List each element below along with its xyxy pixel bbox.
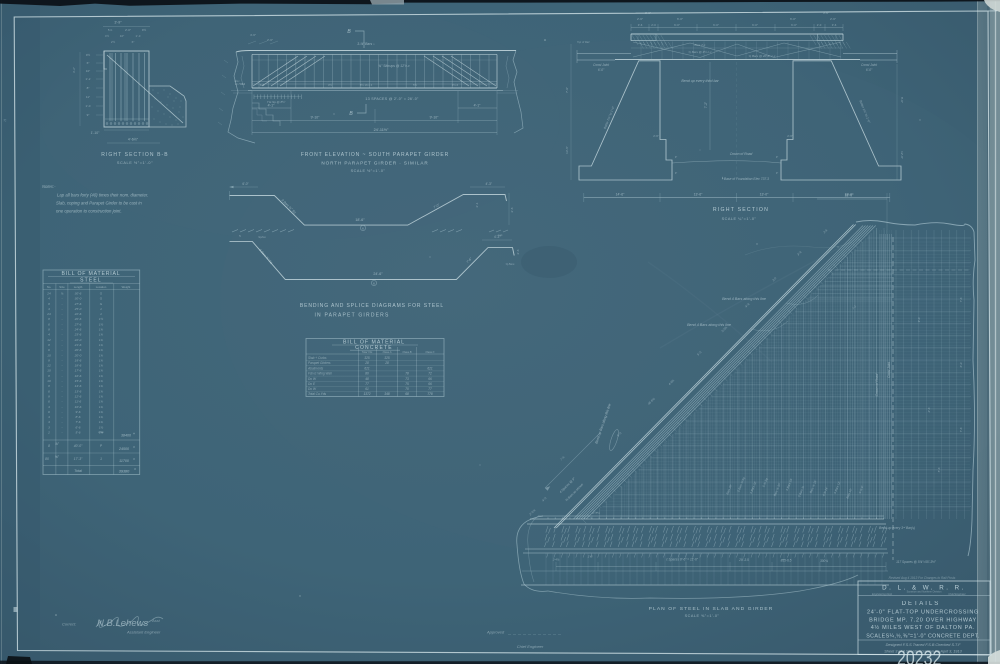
svg-text:78: 78 — [405, 372, 409, 376]
svg-text:10": 10" — [120, 34, 124, 38]
svg-text:6": 6" — [132, 40, 135, 44]
svg-text:2'-7½: 2'-7½ — [591, 511, 600, 515]
svg-text:2-4⅞: 2-4⅞ — [552, 558, 560, 562]
svg-text:DETAILS: DETAILS — [902, 601, 941, 607]
svg-text:9'-10": 9'-10" — [430, 116, 439, 120]
svg-text:6'-0": 6'-0" — [790, 17, 796, 21]
svg-text:2'-1: 2'-1 — [475, 202, 479, 207]
svg-text:1½: 1½ — [99, 425, 104, 429]
svg-text:6: 6 — [48, 322, 50, 326]
svg-text:Elev: Elev — [234, 79, 240, 83]
svg-text:Splice: Splice — [258, 235, 266, 239]
svg-text:2'-6: 2'-6 — [516, 249, 520, 254]
svg-text:1¾: 1¾ — [99, 353, 104, 357]
svg-text:8: 8 — [48, 395, 50, 399]
svg-text:21'-6: 21'-6 — [74, 343, 82, 347]
svg-text:13'-6: 13'-6 — [75, 389, 82, 393]
svg-text:38400: 38400 — [121, 434, 131, 438]
svg-text:18'-6: 18'-6 — [75, 364, 82, 368]
svg-text:1'-3: 1'-3 — [136, 34, 141, 38]
svg-text:8'-6: 8'-6 — [75, 415, 80, 419]
svg-text:-: - — [61, 307, 62, 311]
svg-text:-: - — [61, 322, 62, 326]
svg-text:-: - — [61, 369, 62, 373]
svg-text:9": 9" — [675, 171, 677, 175]
svg-text:80: 80 — [45, 457, 49, 461]
svg-text:9": 9" — [675, 155, 677, 159]
svg-text:19'-6: 19'-6 — [75, 358, 82, 362]
svg-text:BRIDGE MP. 7.20 OVER HIGHWAY: BRIDGE MP. 7.20 OVER HIGHWAY — [869, 618, 977, 624]
svg-text:8: 8 — [48, 302, 50, 306]
svg-text:4: 4 — [48, 415, 50, 419]
svg-text:-: - — [61, 333, 62, 337]
svg-text:Slab, coping and Parapet Girde: Slab, coping and Parapet Girder to be ca… — [56, 201, 142, 206]
svg-text:855-6.5: 855-6.5 — [781, 559, 792, 563]
svg-text:SCALES¼,½,⅜"=1'-0" CONCRETE D: SCALES¼,½,⅜"=1'-0" CONCRETE DEPT. — [866, 633, 980, 640]
svg-text:325: 325 — [384, 356, 390, 360]
svg-text:-: - — [61, 343, 62, 347]
svg-text:1¾: 1¾ — [99, 374, 104, 378]
svg-text:17'-6: 17'-6 — [75, 369, 82, 373]
svg-text:24: 24 — [46, 312, 51, 316]
svg-text:9'-6: 9'-6 — [75, 410, 80, 414]
svg-text:8": 8" — [87, 86, 90, 90]
svg-text:73: 73 — [405, 377, 409, 381]
svg-text:6'-0": 6'-0" — [791, 23, 797, 27]
svg-text:1¾: 1¾ — [99, 348, 104, 352]
svg-text:Total: Total — [74, 469, 82, 473]
svg-text:1'-0: 1'-0 — [86, 104, 91, 108]
svg-text:c Spaces 8'-6" = 11'-6": c Spaces 8'-6" = 11'-6" — [666, 558, 699, 562]
svg-text:1: 1 — [100, 312, 102, 316]
svg-text:20'-6: 20'-6 — [74, 348, 82, 352]
svg-text:4: 4 — [48, 307, 50, 311]
svg-text:77: 77 — [365, 382, 369, 386]
svg-text:10: 10 — [47, 379, 51, 383]
svg-text:2: 2 — [47, 431, 50, 435]
svg-text:1¾: 1¾ — [99, 395, 104, 399]
svg-text:4: 4 — [48, 420, 50, 424]
svg-text:⅝ Bars: ⅝ Bars — [506, 262, 515, 266]
svg-text:BILL OF MATERIAL: BILL OF MATERIAL — [62, 271, 121, 277]
svg-text:Bend up every third bar: Bend up every third bar — [681, 79, 719, 83]
svg-text:5'-6: 5'-6 — [75, 431, 80, 435]
svg-text:SCALE ⅜"=1'-0": SCALE ⅜"=1'-0" — [685, 614, 720, 618]
svg-text:18'-6": 18'-6" — [355, 218, 365, 222]
svg-text:13 SPACES @ 2'-0" = 26'-0": 13 SPACES @ 2'-0" = 26'-0" — [365, 97, 419, 101]
svg-text:9'-10": 9'-10" — [311, 116, 320, 120]
svg-text:9": 9" — [776, 171, 778, 175]
svg-text:Notes:-: Notes:- — [42, 184, 56, 189]
svg-text:348: 348 — [384, 392, 390, 396]
svg-text:STEEL: STEEL — [80, 278, 102, 284]
svg-text:6'-0": 6'-0" — [713, 23, 719, 27]
svg-text:SCALE ¼"=1'-0": SCALE ¼"=1'-0" — [722, 217, 757, 221]
svg-text:13'-6": 13'-6" — [565, 146, 569, 154]
svg-text:-: - — [61, 420, 62, 424]
svg-text:8: 8 — [48, 343, 50, 347]
svg-text:20'-6: 20'-6 — [74, 317, 82, 321]
svg-text:Do W: Do W — [308, 387, 317, 391]
svg-text:4: 4 — [48, 333, 50, 337]
svg-text:1½: 1½ — [99, 322, 104, 326]
svg-text:N.B.Lehews: N.B.Lehews — [97, 618, 148, 629]
svg-text:-: - — [61, 353, 62, 357]
svg-text:24'-6: 24'-6 — [74, 328, 82, 332]
svg-text:13'-0": 13'-0" — [760, 193, 769, 197]
svg-text:24: 24 — [46, 292, 51, 296]
svg-text:-: - — [61, 364, 62, 368]
svg-text:Slab + Curbs: Slab + Curbs — [308, 356, 327, 360]
svg-text:1¾: 1¾ — [99, 410, 104, 414]
svg-text:6'-0: 6'-0 — [959, 362, 963, 367]
svg-text:-: - — [61, 328, 62, 332]
svg-text:27'-6: 27'-6 — [74, 302, 82, 306]
svg-text:24'-0" FLAT-TOP UNDERCROSSING: 24'-0" FLAT-TOP UNDERCROSSING — [867, 610, 979, 616]
svg-text:Crown of Road: Crown of Road — [875, 374, 879, 397]
svg-text:-: - — [61, 297, 62, 301]
svg-text:68: 68 — [405, 392, 409, 396]
svg-text:70: 70 — [405, 387, 409, 391]
svg-text:Total Cu.Yds: Total Cu.Yds — [308, 392, 327, 396]
svg-text:2'-6: 2'-6 — [927, 407, 931, 413]
svg-text:4'-6": 4'-6" — [250, 33, 256, 37]
svg-text:117 Spaces @ 5⅞"=55'-3½": 117 Spaces @ 5⅞"=55'-3½" — [896, 560, 937, 564]
svg-text:10": 10" — [86, 69, 90, 73]
svg-text:Lap all bars forty (40) times: Lap all bars forty (40) times their nom.… — [57, 193, 148, 198]
svg-text:-: - — [61, 302, 62, 306]
svg-text:4'-6½": 4'-6½" — [128, 138, 139, 142]
svg-text:1¾: 1¾ — [99, 328, 104, 332]
svg-text:⅝ Bars @ 20'-6" c-c: ⅝ Bars @ 20'-6" c-c — [749, 54, 776, 58]
svg-text:30'-6: 30'-6 — [75, 292, 82, 296]
svg-text:9½: 9½ — [86, 53, 91, 57]
svg-text:14'-6: 14'-6 — [75, 384, 82, 388]
svg-text:39380: 39380 — [119, 470, 130, 474]
svg-text:≈: ≈ — [4, 118, 7, 124]
svg-text:8: 8 — [48, 358, 50, 362]
svg-text:3'-6": 3'-6" — [645, 11, 651, 15]
svg-text:IN PARAPET GIRDERS: IN PARAPET GIRDERS — [314, 313, 389, 319]
svg-text:one operation to constructi: one operation to construction joint. — [56, 209, 122, 214]
svg-text:-: - — [61, 338, 62, 342]
svg-text:1¾: 1¾ — [99, 379, 104, 383]
svg-text:4'-1": 4'-1" — [268, 104, 276, 108]
svg-text:2'-6": 2'-6" — [637, 17, 643, 21]
svg-text:4'-1": 4'-1" — [474, 104, 482, 108]
svg-text:RIGHT SECTION B-B: RIGHT SECTION B-B — [101, 152, 169, 158]
svg-text:2'-0": 2'-0" — [125, 28, 131, 32]
svg-text:1372: 1372 — [363, 392, 370, 396]
svg-text:1¾: 1¾ — [99, 358, 104, 362]
svg-text:2'-6": 2'-6" — [267, 38, 273, 42]
svg-text:4: 4 — [48, 405, 50, 409]
svg-text:-: - — [61, 389, 62, 393]
svg-text:15'-6: 15'-6 — [75, 379, 82, 383]
svg-text:13'-6": 13'-6" — [694, 193, 703, 197]
svg-text:Top of Rail: Top of Rail — [577, 40, 590, 44]
svg-text:8: 8 — [48, 444, 50, 448]
svg-text:7'-9": 7'-9" — [565, 87, 569, 93]
svg-text:-: - — [61, 379, 62, 383]
svg-text:1: 1 — [100, 457, 102, 461]
svg-text:2'-6: 2'-6 — [510, 207, 514, 212]
svg-text:PLAN OF STEEL IN SLAB AND: PLAN OF STEEL IN SLAB AND GIRDER — [649, 606, 774, 612]
svg-text:4½: 4½ — [105, 34, 110, 38]
svg-text:⅞: ⅞ — [61, 292, 64, 296]
svg-text:11700: 11700 — [119, 459, 129, 463]
svg-text:Const Joint: Const Joint — [593, 63, 609, 67]
svg-text:1½: 1½ — [99, 317, 104, 321]
svg-text:3'-2": 3'-2" — [72, 67, 76, 73]
svg-text:Abutments: Abutments — [307, 366, 324, 370]
svg-text:6'-0": 6'-0" — [242, 182, 248, 186]
svg-text:10: 10 — [47, 369, 51, 373]
svg-text:75: 75 — [405, 382, 409, 386]
svg-text:Do W: Do W — [308, 377, 317, 381]
svg-text:24'-6": 24'-6" — [373, 272, 383, 276]
svg-text:20'-0: 20'-0 — [74, 353, 82, 357]
svg-text:-: - — [61, 400, 62, 404]
svg-text:Class B: Class B — [403, 350, 412, 354]
svg-text:1¾: 1¾ — [99, 338, 104, 342]
svg-text:Chief Engineer: Chief Engineer — [517, 644, 544, 649]
svg-text:6'-0": 6'-0" — [598, 68, 605, 72]
svg-text:1¾: 1¾ — [99, 400, 104, 404]
svg-text:4: 4 — [48, 297, 50, 301]
svg-text:40'-0": 40'-0" — [74, 444, 83, 448]
svg-text:3'-6: 3'-6 — [832, 23, 837, 27]
svg-text:778: 778 — [427, 392, 433, 396]
svg-text:7'-6: 7'-6 — [959, 297, 963, 302]
svg-text:Approved: Approved — [486, 630, 505, 635]
svg-text:⅝×: ⅝× — [241, 82, 245, 86]
svg-text:Length: Length — [74, 285, 83, 289]
svg-text:28: 28 — [384, 361, 389, 365]
svg-text:-: - — [61, 348, 62, 352]
svg-text:3'-9": 3'-9" — [114, 21, 122, 25]
svg-text:80: 80 — [365, 372, 369, 376]
svg-text:1¾: 1¾ — [99, 405, 104, 409]
svg-text:4'-3": 4'-3" — [486, 182, 492, 186]
svg-text:6: 6 — [48, 389, 50, 393]
svg-text:┗ Base of Foundation Elev 7: ┗ Base of Foundation Elev 737.3 — [721, 176, 769, 181]
svg-text:No.: No. — [47, 285, 52, 289]
svg-text:1: 1 — [100, 307, 102, 311]
svg-text:28: 28 — [364, 361, 369, 365]
svg-text:Do E: Do E — [308, 382, 316, 386]
svg-text:Asst: Asst — [151, 618, 161, 623]
svg-text:8: 8 — [48, 328, 50, 332]
svg-text:7'-6: 7'-6 — [75, 420, 80, 424]
svg-text:22'-6: 22'-6 — [74, 312, 82, 316]
svg-text:3'-6: 3'-6 — [638, 23, 643, 27]
svg-text:1¾: 1¾ — [99, 343, 104, 347]
svg-text:1'-8: 1'-8 — [588, 555, 593, 559]
svg-text:8'-0": 8'-0" — [900, 97, 904, 103]
svg-text:48: 48 — [365, 377, 369, 381]
svg-text:1¾: 1¾ — [99, 420, 104, 424]
svg-text:-: - — [61, 358, 62, 362]
svg-text:NORTH PARAPET GIRDER · SIMILAR: NORTH PARAPET GIRDER · SIMILAR — [321, 161, 428, 166]
svg-text:6: 6 — [48, 410, 50, 414]
svg-text:Crown of Road: Crown of Road — [730, 152, 753, 156]
svg-text:BENDING AND SPLICE DIAGRAMS FO: BENDING AND SPLICE DIAGRAMS FOR STEEL — [300, 303, 444, 309]
svg-text:12: 12 — [47, 364, 51, 368]
svg-text:6'-0": 6'-0" — [677, 17, 683, 21]
svg-text:1'-2: 1'-2 — [86, 77, 91, 81]
svg-text:Class A: Class A — [383, 350, 392, 354]
svg-text:-: - — [61, 374, 62, 378]
svg-text:2'-6": 2'-6" — [830, 17, 836, 21]
svg-text:Lap: Lap — [498, 233, 503, 237]
svg-text:12: 12 — [47, 338, 51, 342]
svg-text:8: 8 — [48, 374, 50, 378]
svg-text:2'-0: 2'-0 — [817, 23, 822, 27]
svg-text:Bend up every 3ʳᵈ Bar(s): Bend up every 3ʳᵈ Bar(s) — [879, 526, 915, 530]
svg-text:14'-6": 14'-6" — [616, 193, 625, 197]
svg-text:77: 77 — [428, 387, 432, 391]
svg-text:1¾: 1¾ — [99, 364, 104, 368]
svg-text:-: - — [61, 415, 62, 419]
svg-text:7'-2": 7'-2" — [704, 102, 708, 108]
svg-text:-: - — [61, 317, 62, 321]
svg-text:72: 72 — [428, 372, 432, 376]
svg-text:6'-6: 6'-6 — [75, 425, 80, 429]
svg-text:FRONT ELEVATION ~ SOUTH PARAPE: FRONT ELEVATION ~ SOUTH PARAPET GIRDER — [301, 152, 449, 158]
svg-text:17'-3": 17'-3" — [74, 457, 83, 461]
svg-text:6: 6 — [48, 400, 50, 404]
svg-text:4½ MILES WEST OF DALTON PA.: 4½ MILES WEST OF DALTON PA. — [871, 624, 975, 631]
svg-text:Parapet Girders: Parapet Girders — [308, 361, 331, 365]
svg-text:Weight: Weight — [122, 285, 131, 289]
svg-text:2'-6": 2'-6" — [787, 134, 793, 138]
svg-text:3½: 3½ — [328, 83, 333, 87]
svg-text:-: - — [61, 405, 62, 409]
svg-text:23'-6: 23'-6 — [74, 333, 82, 337]
svg-text:8: 8 — [48, 384, 50, 388]
svg-text:2'-0: 2'-0 — [651, 23, 656, 27]
svg-text:621: 621 — [364, 366, 370, 370]
svg-text:9": 9" — [87, 113, 90, 117]
svg-text:325: 325 — [364, 356, 370, 360]
svg-text:Size: Size — [59, 285, 65, 289]
svg-text:1¾: 1¾ — [99, 333, 104, 337]
svg-text:-: - — [61, 431, 62, 435]
svg-text:1¾: 1¾ — [99, 384, 104, 388]
svg-text:11'-6: 11'-6 — [75, 400, 82, 404]
svg-text:4½·6: 4½·6 — [452, 83, 459, 87]
svg-text:Revised Aug 4 1913 For Change: Revised Aug 4 1913 For Changes to Rail P… — [889, 576, 956, 580]
svg-text:12'-0": 12'-0" — [900, 151, 904, 159]
svg-text:61: 61 — [365, 387, 369, 391]
svg-text:20232: 20232 — [897, 646, 941, 664]
svg-text:29'-3.5: 29'-3.5 — [738, 558, 749, 562]
svg-text:Chief Engineer: Chief Engineer — [948, 592, 965, 596]
svg-text:Scranton and Northern Division: Scranton and Northern Division — [907, 590, 942, 593]
svg-text:Engineering Dept: Engineering Dept — [872, 592, 892, 596]
svg-text:3'-0: 3'-0 — [917, 317, 921, 322]
svg-text:RIGHT SECTION: RIGHT SECTION — [713, 207, 769, 213]
svg-text:6: 6 — [48, 348, 50, 352]
svg-text:6'-0": 6'-0" — [674, 23, 680, 27]
svg-text:27'-6: 27'-6 — [74, 322, 82, 326]
svg-text:Total Yds: Total Yds — [362, 350, 373, 354]
svg-text:SCALE ½"=1'-0": SCALE ½"=1'-0" — [351, 169, 386, 173]
svg-text:9": 9" — [776, 155, 778, 159]
svg-text:6": 6" — [87, 61, 90, 65]
svg-text:-: - — [61, 312, 62, 316]
svg-text:Const Joint: Const Joint — [861, 63, 877, 67]
svg-text:-: - — [61, 395, 62, 399]
svg-text:24500: 24500 — [118, 447, 129, 451]
svg-text:¾" Stirrups @ 12"c-c: ¾" Stirrups @ 12"c-c — [378, 64, 410, 68]
svg-text:300¼: 300¼ — [820, 559, 828, 563]
svg-text:Location: Location — [96, 285, 107, 289]
svg-text:6x6: 6x6 — [260, 83, 265, 87]
svg-text:25'-0: 25'-0 — [74, 307, 82, 311]
svg-text:11": 11" — [86, 95, 90, 99]
svg-text:16'-6: 16'-6 — [75, 374, 82, 378]
svg-text:7'-6: 7'-6 — [959, 427, 963, 432]
svg-text:5½: 5½ — [413, 83, 418, 87]
svg-text:⅞ Bars @ 4½ c-c: ⅞ Bars @ 4½ c-c — [688, 50, 712, 54]
svg-text:10'-6: 10'-6 — [75, 405, 82, 409]
svg-text:-: - — [61, 425, 62, 429]
svg-text:3: 3 — [48, 425, 50, 429]
svg-text:18'-0": 18'-0" — [845, 194, 854, 198]
svg-text:5'-6: 5'-6 — [937, 467, 941, 472]
svg-text:6'-0": 6'-0" — [866, 68, 873, 72]
svg-text:10: 10 — [47, 353, 51, 357]
svg-text:22'-0: 22'-0 — [74, 338, 82, 342]
svg-text:6'-0": 6'-0" — [752, 23, 758, 27]
svg-text:-: - — [61, 384, 62, 388]
svg-text:5⅞: 5⅞ — [108, 28, 113, 32]
svg-text:3'-6": 3'-6" — [823, 11, 829, 15]
svg-text:30'-0: 30'-0 — [75, 297, 82, 301]
svg-text:Correct:: Correct: — [62, 622, 76, 627]
svg-text:-: - — [61, 410, 62, 414]
svg-text:2'-6": 2'-6" — [653, 134, 659, 138]
svg-text:Class C: Class C — [425, 350, 434, 354]
svg-text:1¾: 1¾ — [99, 415, 104, 419]
svg-text:Fdn E Wing Wall: Fdn E Wing Wall — [308, 372, 332, 376]
svg-text:9½: 9½ — [142, 28, 147, 32]
svg-text:8: 8 — [48, 317, 50, 321]
svg-text:Lbs: Lbs — [99, 430, 104, 434]
svg-text:SCALE ½"=1'-0": SCALE ½"=1'-0" — [117, 161, 153, 165]
svg-text:66: 66 — [428, 382, 432, 386]
svg-text:2½: 2½ — [111, 40, 116, 44]
svg-text:1¾: 1¾ — [99, 389, 104, 393]
svg-text:12'-6: 12'-6 — [75, 395, 82, 399]
svg-text:Assistant Engineer: Assistant Engineer — [126, 630, 161, 635]
svg-text:1'-10": 1'-10" — [91, 131, 100, 135]
svg-text:1¾: 1¾ — [99, 369, 104, 373]
svg-text:66: 66 — [428, 377, 432, 381]
svg-text:621: 621 — [427, 366, 433, 370]
svg-text:6½ 16 x 4: 6½ 16 x 4 — [360, 83, 373, 87]
svg-text:Bars 4'-1: Bars 4'-1 — [694, 43, 706, 47]
svg-text:3-⅞" Bars ↓: 3-⅞" Bars ↓ — [357, 42, 375, 46]
svg-text:24'-11½": 24'-11½" — [374, 128, 389, 132]
